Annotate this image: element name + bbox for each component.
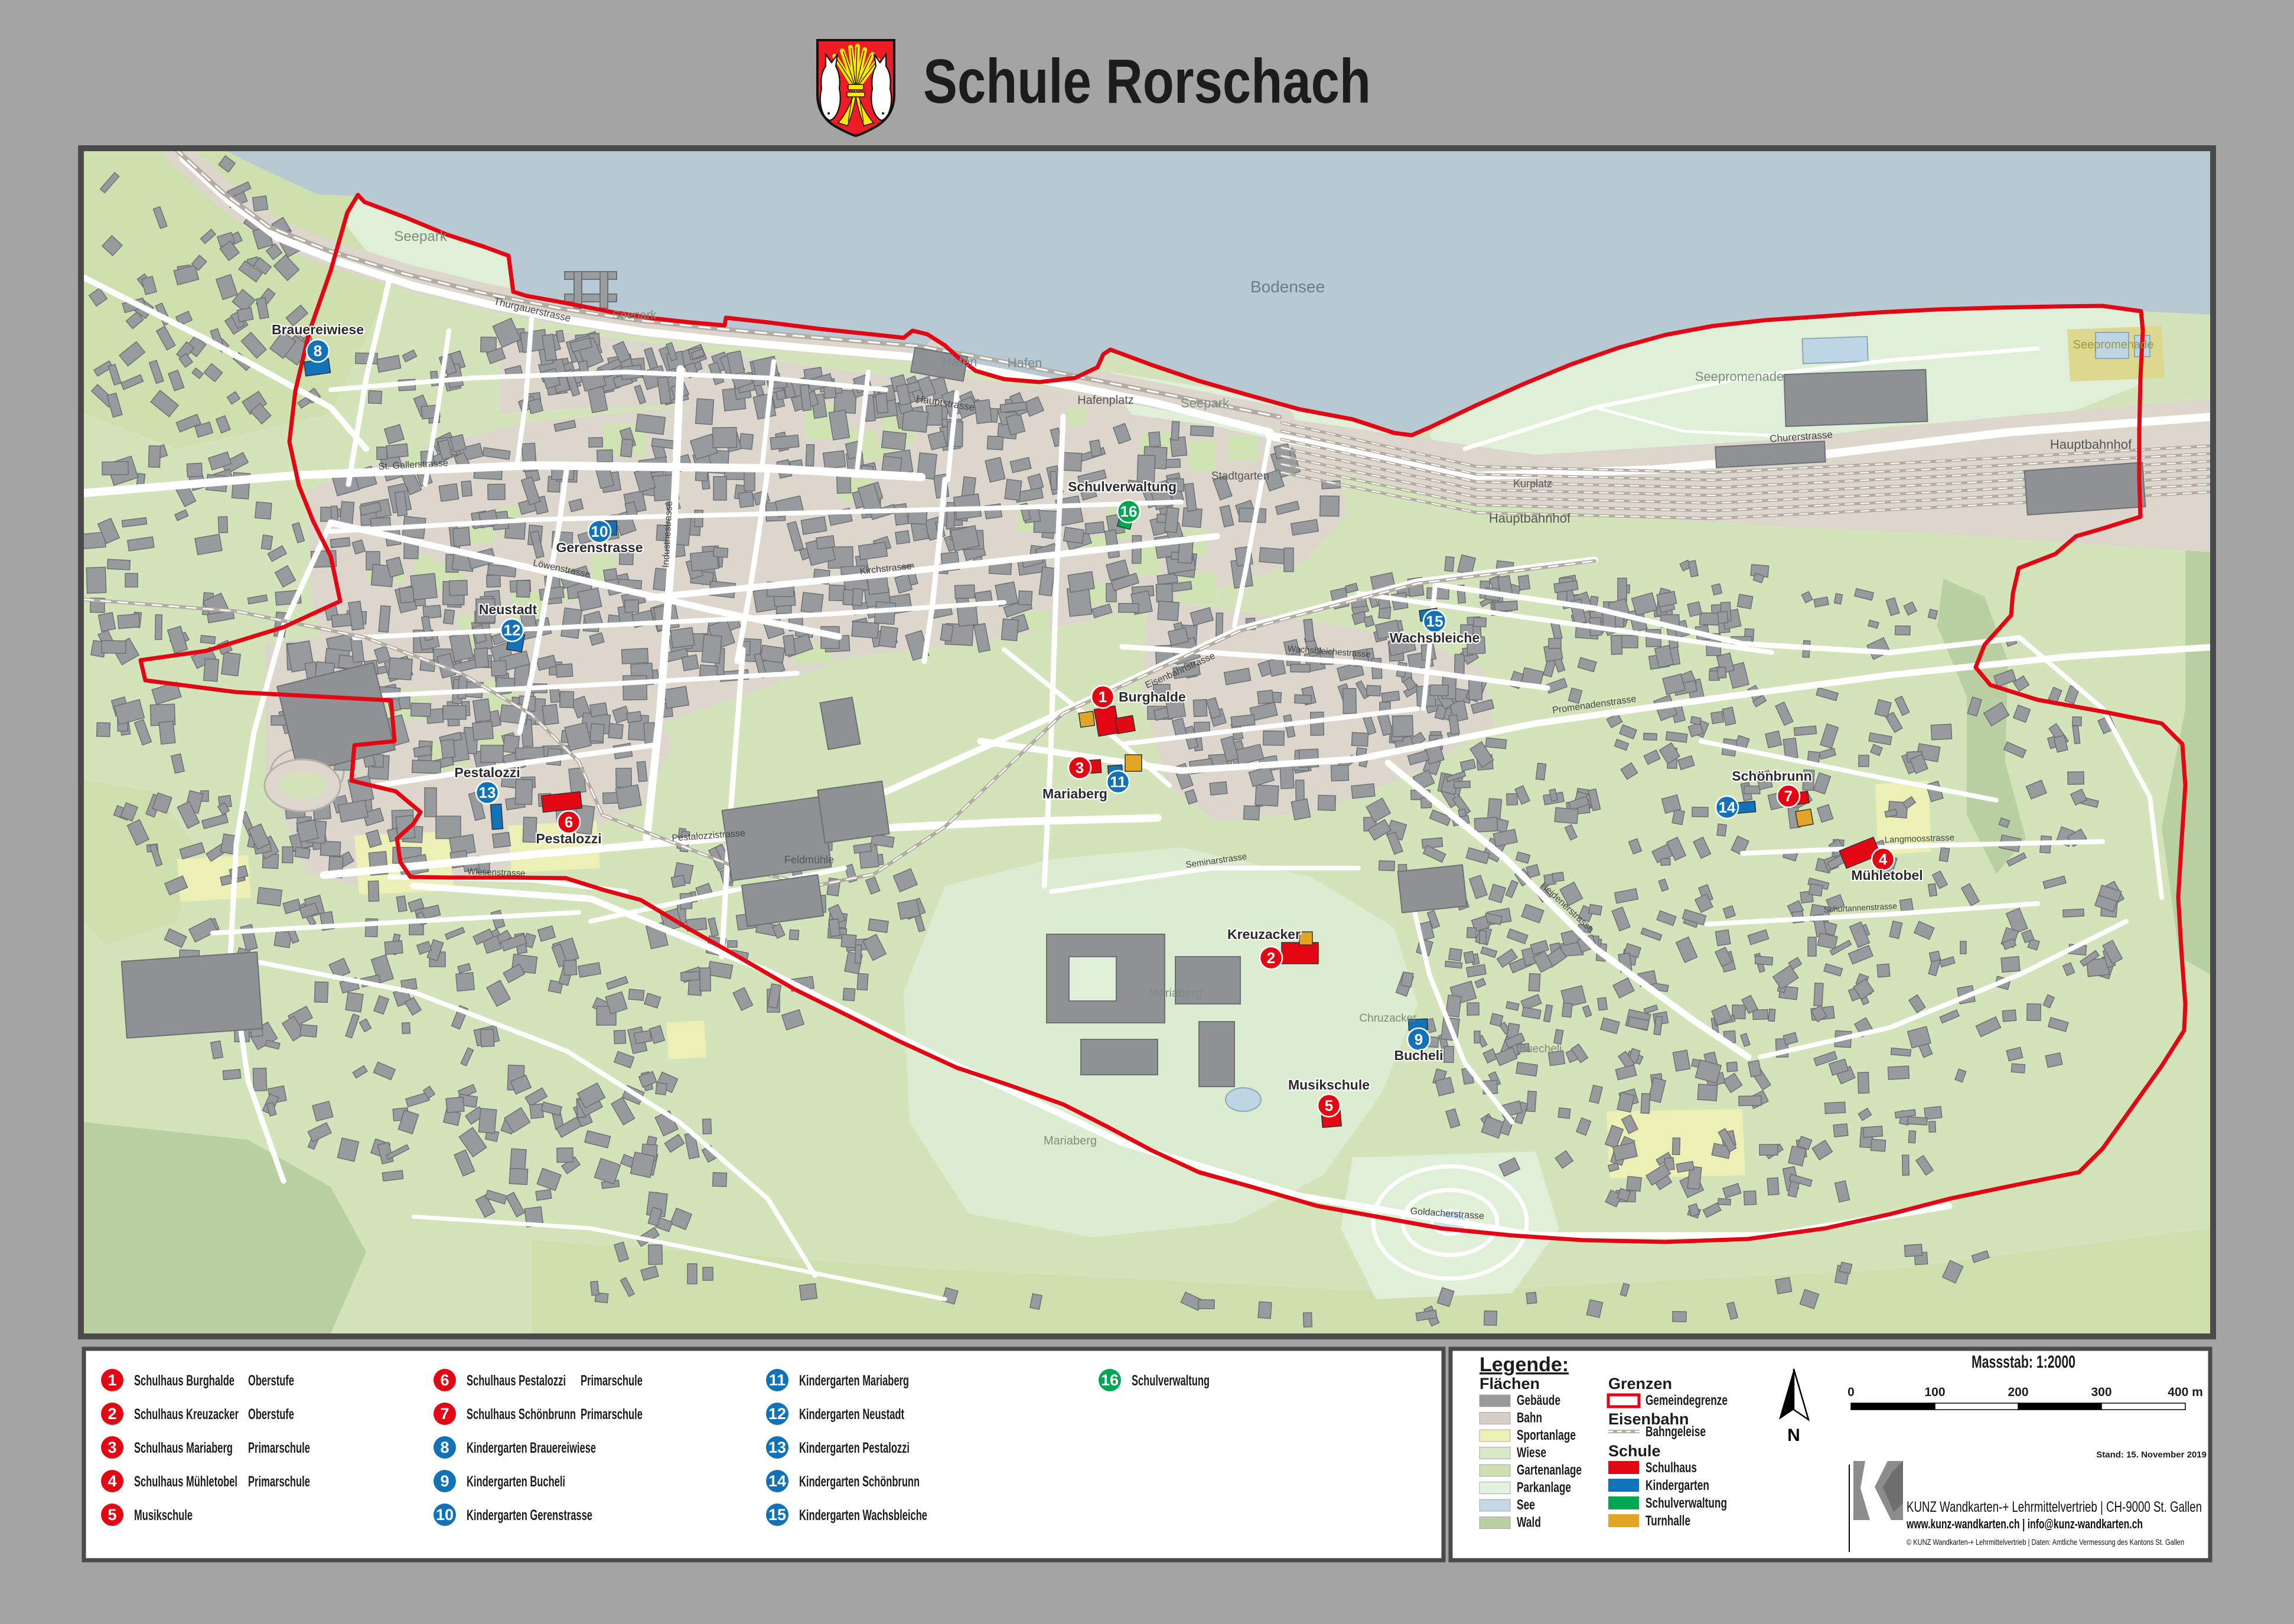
svg-text:Legende:: Legende:: [1480, 1354, 1569, 1376]
svg-text:Buecheli: Buecheli: [1519, 1043, 1562, 1055]
svg-text:Seepromenade: Seepromenade: [2073, 338, 2154, 351]
svg-text:100: 100: [1924, 1385, 1945, 1399]
svg-text:Mariaberg: Mariaberg: [1044, 1134, 1097, 1147]
svg-text:10: 10: [436, 1506, 454, 1524]
svg-text:7: 7: [440, 1405, 449, 1423]
svg-text:See: See: [1517, 1497, 1535, 1513]
svg-text:4: 4: [107, 1472, 116, 1490]
svg-text:Turnhalle: Turnhalle: [1645, 1513, 1690, 1529]
svg-text:Seepark: Seepark: [394, 229, 447, 244]
svg-text:Hafenplatz: Hafenplatz: [1077, 394, 1134, 407]
svg-text:5: 5: [107, 1506, 116, 1524]
svg-text:Schulhaus Mariaberg: Schulhaus Mariaberg: [134, 1440, 233, 1456]
svg-text:8: 8: [314, 342, 322, 360]
svg-text:Flächen: Flächen: [1480, 1375, 1540, 1393]
svg-text:© KUNZ Wandkarten-+ Lehrmittel: © KUNZ Wandkarten-+ Lehrmittelvertrieb |…: [1907, 1537, 2184, 1547]
svg-text:Kreuzacker: Kreuzacker: [1227, 927, 1301, 942]
svg-text:Hafen: Hafen: [1008, 356, 1042, 370]
svg-text:Schulhaus Schönbrunn: Schulhaus Schönbrunn: [467, 1406, 576, 1423]
svg-text:Kindergarten: Kindergarten: [1645, 1478, 1709, 1493]
svg-text:Wiese: Wiese: [1517, 1445, 1546, 1461]
svg-text:Stand: 15. November 2019: Stand: 15. November 2019: [2096, 1450, 2207, 1460]
svg-text:Kindergarten Wachsbleiche: Kindergarten Wachsbleiche: [799, 1507, 927, 1524]
svg-text:14: 14: [1719, 798, 1736, 816]
svg-text:Kindergarten Brauereiwiese: Kindergarten Brauereiwiese: [467, 1440, 596, 1456]
svg-text:Massstab: 1:2000: Massstab: 1:2000: [1972, 1352, 2075, 1372]
svg-text:Brauereiwiese: Brauereiwiese: [272, 322, 364, 337]
svg-text:13: 13: [768, 1439, 786, 1456]
svg-text:16: 16: [1120, 503, 1138, 520]
svg-text:Gemeindegrenze: Gemeindegrenze: [1645, 1393, 1728, 1408]
svg-text:Gartenanlage: Gartenanlage: [1517, 1462, 1582, 1478]
svg-text:Kindergarten Mariaberg: Kindergarten Mariaberg: [799, 1372, 909, 1389]
svg-text:4: 4: [1879, 850, 1888, 868]
svg-text:16: 16: [1101, 1371, 1119, 1389]
svg-text:11: 11: [1110, 773, 1126, 791]
svg-text:Schule Rorschach: Schule Rorschach: [923, 47, 1371, 116]
svg-text:15: 15: [768, 1506, 786, 1524]
svg-text:Pestalozzi: Pestalozzi: [454, 765, 520, 780]
svg-text:Bucheli: Bucheli: [1394, 1048, 1443, 1063]
svg-text:Schule: Schule: [1608, 1442, 1661, 1460]
svg-text:Schulverwaltung: Schulverwaltung: [1132, 1372, 1210, 1389]
svg-text:Sportanlage: Sportanlage: [1517, 1427, 1576, 1443]
svg-text:Gebäude: Gebäude: [1517, 1393, 1560, 1408]
svg-text:Wachsbleiche: Wachsbleiche: [1390, 630, 1480, 645]
svg-text:Schulhaus Burghalde: Schulhaus Burghalde: [134, 1372, 234, 1389]
svg-text:Schulverwaltung: Schulverwaltung: [1645, 1495, 1727, 1511]
svg-text:Burghalde: Burghalde: [1119, 689, 1186, 705]
svg-text:2: 2: [107, 1405, 116, 1423]
svg-text:Grenzen: Grenzen: [1608, 1375, 1672, 1393]
svg-text:Gerenstrasse: Gerenstrasse: [556, 540, 643, 555]
svg-text:200: 200: [2008, 1385, 2028, 1399]
svg-text:6: 6: [565, 813, 573, 831]
svg-text:13: 13: [479, 784, 496, 801]
svg-text:7: 7: [1784, 787, 1793, 805]
svg-text:8: 8: [440, 1439, 449, 1456]
svg-text:Schulverwaltung: Schulverwaltung: [1068, 479, 1177, 494]
svg-text:400 m: 400 m: [2168, 1385, 2203, 1399]
svg-text:Seepark: Seepark: [1181, 396, 1230, 410]
svg-text:Seepark: Seepark: [612, 309, 657, 322]
svg-text:Oberstufe: Oberstufe: [248, 1406, 294, 1423]
svg-text:10: 10: [591, 523, 608, 540]
svg-text:Schulhaus Pestalozzi: Schulhaus Pestalozzi: [467, 1372, 566, 1389]
svg-text:Primarschule: Primarschule: [248, 1473, 310, 1490]
svg-text:12: 12: [504, 621, 521, 639]
svg-text:Kindergarten Bucheli: Kindergarten Bucheli: [467, 1473, 565, 1490]
svg-text:Primarschule: Primarschule: [248, 1440, 310, 1456]
svg-text:Kurplatz: Kurplatz: [1513, 478, 1552, 490]
svg-text:Mariaberg: Mariaberg: [1042, 786, 1107, 801]
svg-text:Kindergarten Pestalozzi: Kindergarten Pestalozzi: [799, 1440, 910, 1456]
svg-text:Musikschule: Musikschule: [1288, 1077, 1370, 1093]
svg-text:Schönbrunn: Schönbrunn: [1732, 768, 1811, 784]
svg-text:Primarschule: Primarschule: [581, 1372, 643, 1389]
svg-text:Kindergarten Gerenstrasse: Kindergarten Gerenstrasse: [467, 1507, 592, 1524]
svg-text:Parkanlage: Parkanlage: [1517, 1480, 1571, 1496]
svg-text:Kindergarten Schönbrunn: Kindergarten Schönbrunn: [799, 1473, 920, 1490]
svg-text:N: N: [1787, 1426, 1800, 1445]
svg-text:Feldmühle: Feldmühle: [784, 854, 834, 866]
svg-text:1: 1: [1099, 688, 1107, 706]
svg-text:0: 0: [1847, 1385, 1855, 1399]
svg-text:1: 1: [107, 1371, 116, 1389]
svg-text:Schulhaus Kreuzacker: Schulhaus Kreuzacker: [134, 1406, 239, 1423]
svg-text:15: 15: [1426, 612, 1443, 630]
svg-text:6: 6: [440, 1371, 449, 1389]
svg-text:Chruzacker: Chruzacker: [1359, 1012, 1417, 1025]
svg-text:Oberstufe: Oberstufe: [248, 1372, 294, 1389]
svg-text:Seepromenade: Seepromenade: [1695, 369, 1784, 384]
svg-text:Hauptbahnhof: Hauptbahnhof: [1489, 511, 1571, 526]
svg-text:Schulhaus Mühletobel: Schulhaus Mühletobel: [134, 1473, 237, 1490]
svg-text:Mühletobel: Mühletobel: [1851, 868, 1922, 883]
svg-text:Bodensee: Bodensee: [1250, 278, 1325, 296]
svg-text:Wald: Wald: [1517, 1515, 1541, 1531]
svg-text:300: 300: [2091, 1385, 2111, 1399]
svg-text:Schulhaus: Schulhaus: [1645, 1460, 1697, 1476]
svg-text:3: 3: [1076, 759, 1084, 777]
svg-text:Bahn: Bahn: [1517, 1410, 1542, 1426]
svg-text:www.kunz-wandkarten.ch | info@: www.kunz-wandkarten.ch | info@kunz-wandk…: [1906, 1517, 2143, 1531]
svg-text:11: 11: [769, 1371, 786, 1389]
svg-text:Mariaberg: Mariaberg: [1149, 987, 1202, 1000]
svg-text:Stadtgarten: Stadtgarten: [1211, 470, 1269, 482]
svg-text:KUNZ Wandkarten-+ Lehrmittelve: KUNZ Wandkarten-+ Lehrmittelvertrieb | C…: [1907, 1499, 2202, 1515]
svg-text:Wiesenstrasse: Wiesenstrasse: [467, 866, 526, 878]
svg-text:Bahngeleise: Bahngeleise: [1645, 1424, 1706, 1440]
svg-text:12: 12: [768, 1405, 786, 1423]
svg-text:5: 5: [1325, 1097, 1333, 1114]
svg-text:3: 3: [107, 1439, 116, 1456]
svg-text:Hauptbahnhof: Hauptbahnhof: [2050, 437, 2132, 452]
svg-text:14: 14: [768, 1472, 786, 1490]
svg-text:9: 9: [1415, 1031, 1423, 1048]
svg-text:Pestalozzi: Pestalozzi: [536, 831, 601, 846]
svg-text:Hafen: Hafen: [943, 354, 977, 369]
svg-text:2: 2: [1267, 949, 1275, 967]
svg-text:9: 9: [440, 1472, 449, 1490]
svg-text:Primarschule: Primarschule: [581, 1406, 643, 1423]
svg-text:Neustadt: Neustadt: [479, 602, 537, 617]
svg-text:Kindergarten Neustadt: Kindergarten Neustadt: [799, 1406, 904, 1423]
svg-text:Musikschule: Musikschule: [134, 1507, 193, 1524]
